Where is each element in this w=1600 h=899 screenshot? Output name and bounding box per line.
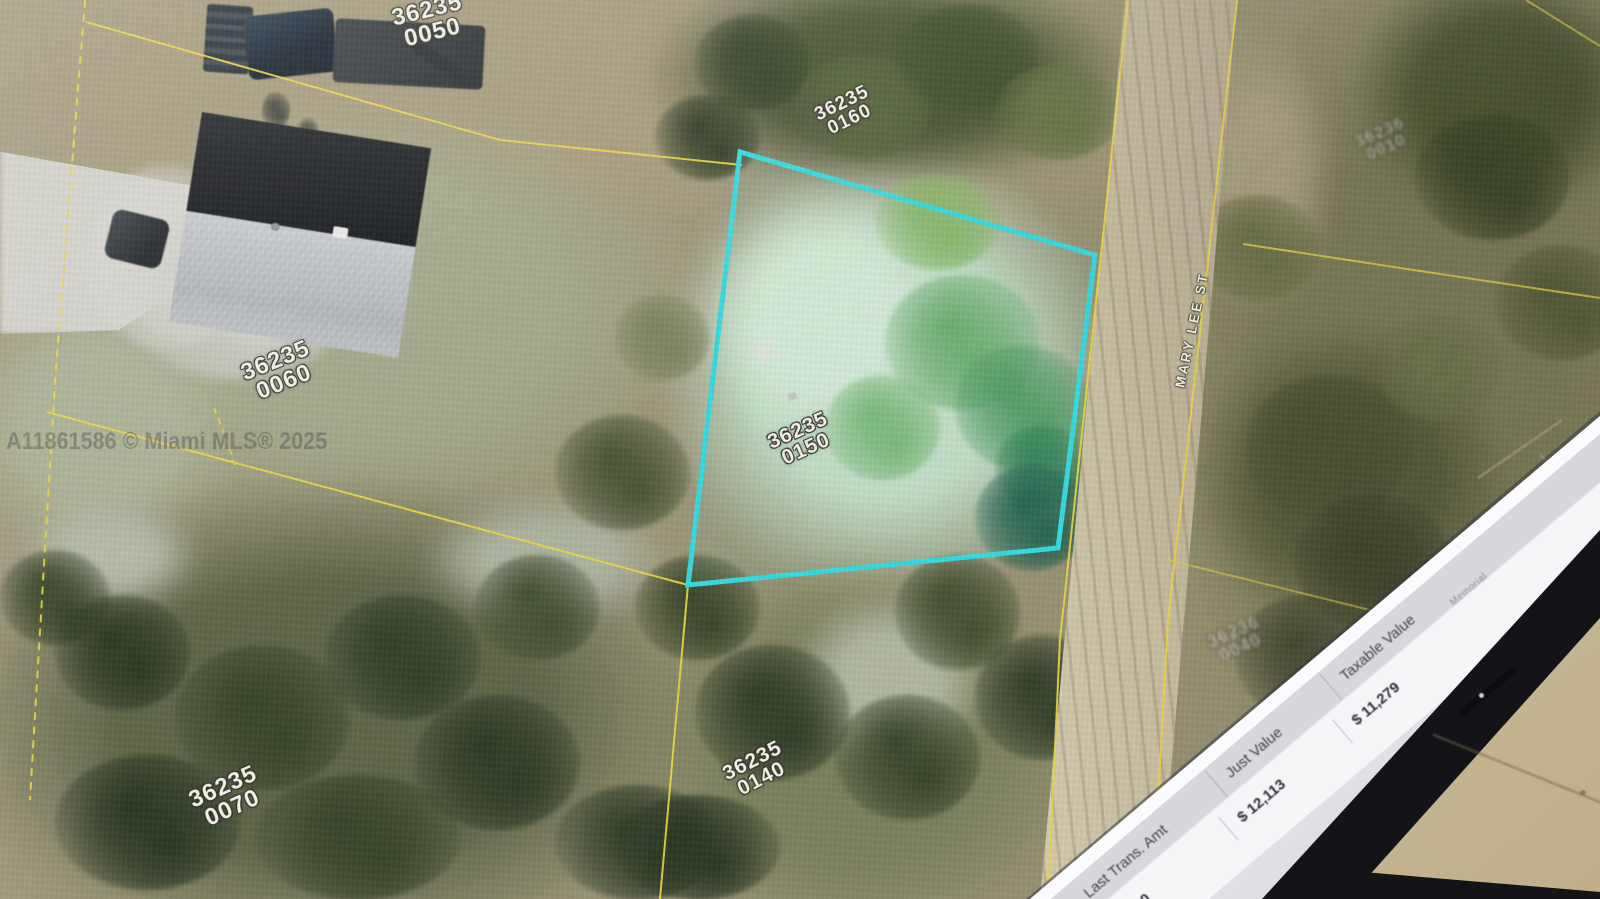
photographed-monitor-screen: 362350050 362350060 362350070 362350140 … bbox=[0, 0, 1600, 899]
bezel-dot bbox=[1479, 693, 1484, 698]
desk-speck bbox=[1580, 790, 1586, 795]
